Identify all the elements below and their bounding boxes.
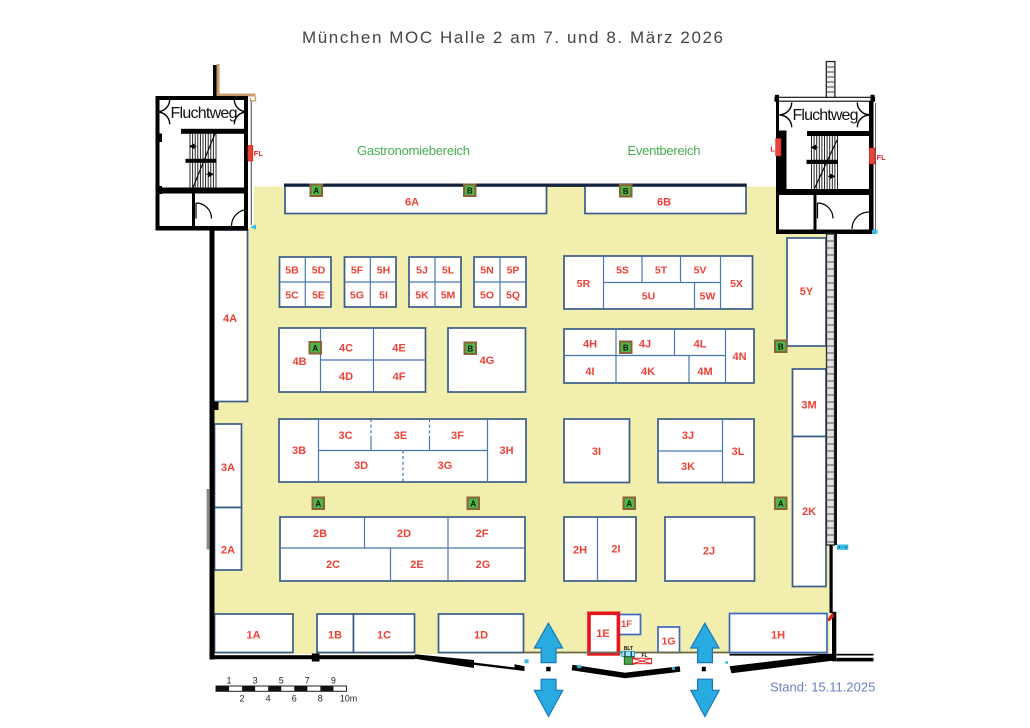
svg-text:4C: 4C: [339, 343, 353, 355]
svg-text:A: A: [313, 186, 319, 195]
svg-text:6B: 6B: [657, 197, 671, 209]
svg-text:4B: 4B: [292, 356, 306, 368]
svg-text:4: 4: [266, 694, 271, 704]
svg-text:5Q: 5Q: [506, 290, 520, 302]
svg-text:7: 7: [305, 676, 310, 686]
svg-text:2A: 2A: [221, 545, 235, 557]
svg-text:4E: 4E: [392, 343, 405, 355]
svg-text:2K: 2K: [802, 506, 816, 518]
svg-text:Stand: 15.11.2025: Stand: 15.11.2025: [770, 680, 875, 695]
svg-text:2F: 2F: [476, 528, 489, 540]
svg-text:Fluchtweg: Fluchtweg: [171, 105, 238, 122]
svg-text:5M: 5M: [441, 290, 456, 302]
svg-text:4K: 4K: [641, 366, 655, 378]
svg-text:2I: 2I: [611, 544, 620, 556]
svg-text:A: A: [778, 499, 784, 508]
svg-text:3I: 3I: [592, 446, 601, 458]
svg-text:B: B: [778, 342, 784, 351]
svg-text:5X: 5X: [730, 278, 743, 290]
svg-text:5H: 5H: [377, 265, 390, 277]
svg-text:1D: 1D: [474, 630, 488, 642]
svg-text:4L: 4L: [694, 339, 707, 351]
svg-text:5U: 5U: [642, 291, 655, 303]
svg-text:5E: 5E: [312, 290, 325, 302]
svg-text:Gastronomiebereich: Gastronomiebereich: [357, 143, 470, 158]
svg-text:4M: 4M: [697, 366, 712, 378]
svg-text:4G: 4G: [480, 355, 495, 367]
svg-text:5K: 5K: [415, 290, 429, 302]
svg-text:3L: 3L: [732, 446, 745, 458]
svg-text:A: A: [470, 499, 476, 508]
svg-text:3G: 3G: [438, 460, 453, 472]
svg-text:5O: 5O: [480, 290, 494, 302]
svg-text:9: 9: [331, 676, 336, 686]
svg-text:1C: 1C: [377, 630, 391, 642]
svg-text:1A: 1A: [246, 630, 260, 642]
svg-text:2E: 2E: [410, 559, 423, 571]
svg-text:4D: 4D: [339, 371, 353, 383]
svg-text:3K: 3K: [681, 461, 695, 473]
svg-text:8: 8: [318, 694, 323, 704]
svg-text:5R: 5R: [577, 278, 591, 290]
svg-text:1: 1: [226, 676, 231, 686]
svg-text:B: B: [467, 186, 473, 195]
svg-text:München MOC Halle 2 am 7. und: München MOC Halle 2 am 7. und 8. März 20…: [302, 28, 723, 47]
svg-text:3: 3: [253, 676, 258, 686]
svg-text:3B: 3B: [292, 445, 306, 457]
svg-text:B: B: [623, 343, 629, 352]
svg-text:2C: 2C: [326, 559, 340, 571]
svg-text:2G: 2G: [476, 559, 491, 571]
svg-text:1F: 1F: [621, 619, 632, 630]
svg-text:5I: 5I: [379, 290, 388, 302]
svg-text:5: 5: [279, 676, 284, 686]
svg-text:Eventbereich: Eventbereich: [628, 143, 701, 158]
svg-text:FL: FL: [877, 153, 887, 162]
svg-text:2D: 2D: [397, 528, 411, 540]
svg-text:B: B: [467, 344, 473, 353]
svg-text:5B: 5B: [285, 265, 299, 277]
svg-text:4N: 4N: [732, 351, 746, 363]
svg-text:3D: 3D: [354, 460, 368, 472]
svg-text:3A: 3A: [221, 462, 235, 474]
svg-text:5P: 5P: [507, 265, 520, 277]
svg-text:3C: 3C: [338, 430, 352, 442]
svg-text:10m: 10m: [340, 694, 358, 704]
svg-text:5T: 5T: [655, 265, 668, 277]
svg-text:A: A: [315, 499, 321, 508]
svg-text:A: A: [626, 499, 632, 508]
svg-text:2B: 2B: [313, 528, 327, 540]
svg-text:4A: 4A: [223, 313, 237, 325]
svg-text:3E: 3E: [394, 430, 407, 442]
svg-text:3M: 3M: [801, 400, 816, 412]
svg-text:5S: 5S: [616, 265, 629, 277]
svg-text:1H: 1H: [771, 630, 785, 642]
svg-text:2H: 2H: [573, 545, 587, 557]
svg-text:6: 6: [292, 694, 297, 704]
svg-text:1E: 1E: [596, 628, 609, 640]
svg-text:5D: 5D: [312, 265, 326, 277]
svg-text:B: B: [623, 187, 629, 196]
svg-text:5C: 5C: [285, 290, 299, 302]
svg-text:2J: 2J: [703, 546, 715, 558]
svg-text:L: L: [770, 145, 775, 154]
svg-text:5J: 5J: [416, 265, 428, 277]
svg-text:3H: 3H: [499, 445, 513, 457]
svg-text:4J: 4J: [639, 339, 651, 351]
svg-text:2: 2: [239, 694, 244, 704]
svg-text:1B: 1B: [328, 630, 342, 642]
svg-text:Fluchtweg: Fluchtweg: [793, 107, 859, 124]
svg-text:4I: 4I: [585, 366, 594, 378]
svg-text:5Y: 5Y: [800, 286, 814, 298]
svg-text:4H: 4H: [583, 339, 597, 351]
svg-text:6A: 6A: [405, 197, 419, 209]
svg-text:5V: 5V: [694, 265, 707, 277]
svg-text:FL: FL: [254, 149, 264, 158]
svg-text:4F: 4F: [393, 371, 406, 383]
svg-text:5G: 5G: [350, 290, 364, 302]
svg-text:5W: 5W: [700, 291, 716, 303]
svg-text:3J: 3J: [682, 430, 694, 442]
svg-text:5F: 5F: [351, 265, 364, 277]
svg-text:3F: 3F: [451, 430, 464, 442]
svg-text:5L: 5L: [442, 265, 455, 277]
svg-text:1G: 1G: [661, 636, 675, 648]
svg-text:A: A: [312, 344, 318, 353]
svg-text:5N: 5N: [480, 265, 493, 277]
